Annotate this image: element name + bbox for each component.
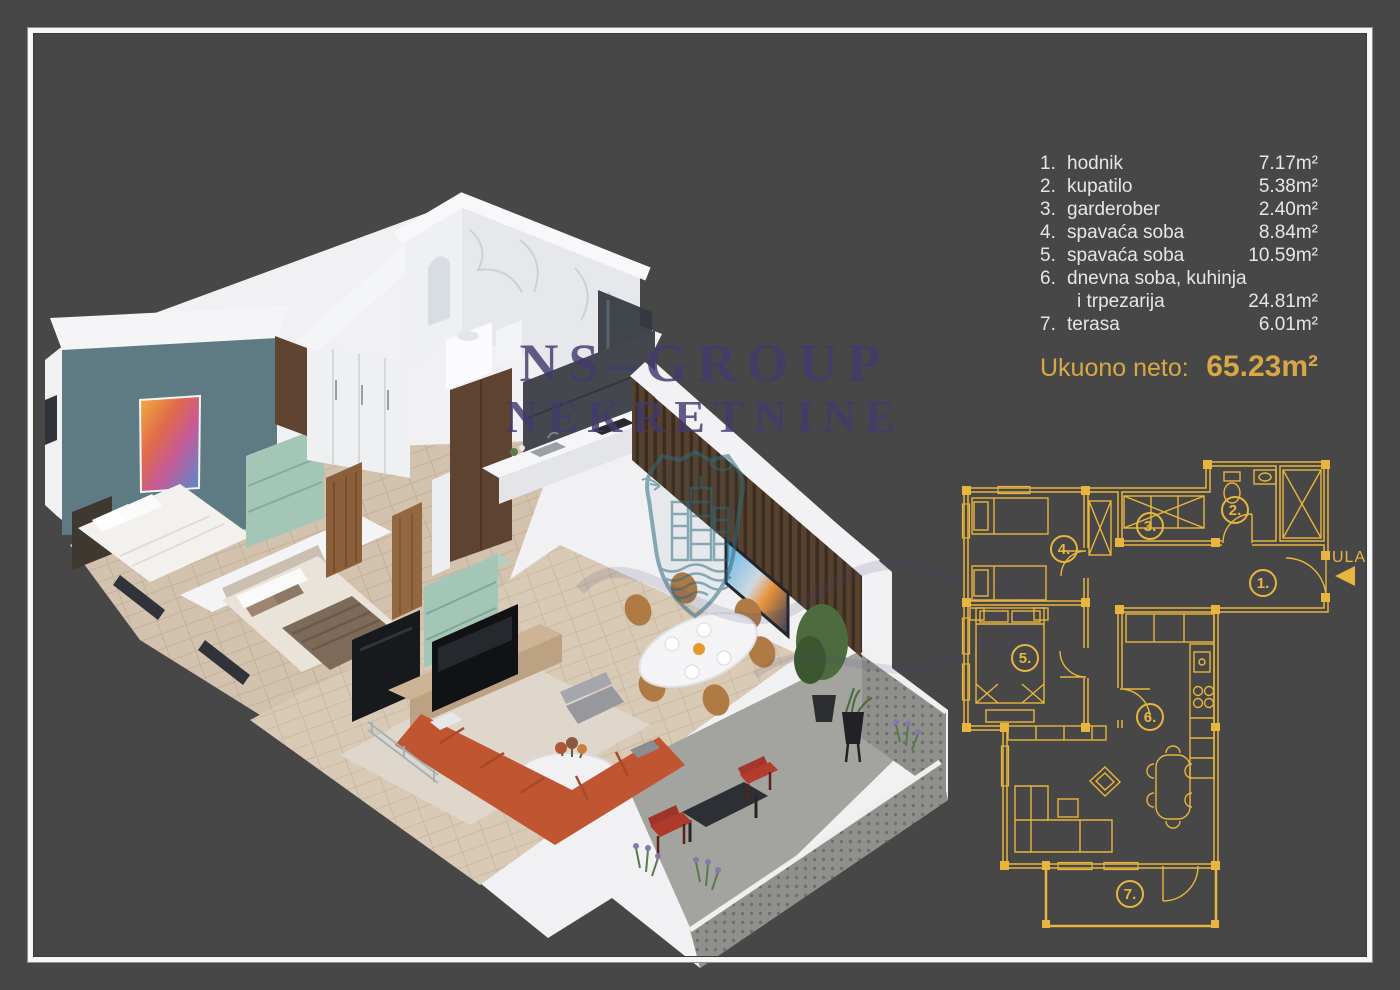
flyer-canvas: NS–GROUP NEKRETNINE 1. hodnik 7.17m² 2. …: [0, 0, 1400, 990]
border-frame: [28, 28, 1372, 962]
